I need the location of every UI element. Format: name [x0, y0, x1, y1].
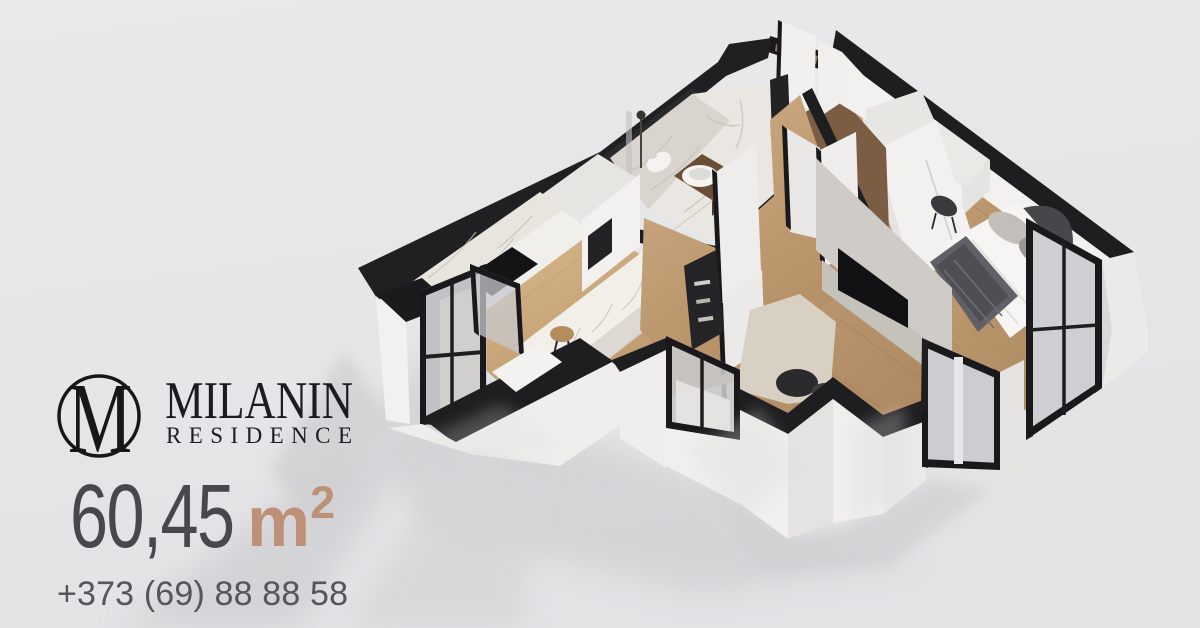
- svg-text:60,45: 60,45: [70, 466, 234, 566]
- svg-text:RESIDENCE: RESIDENCE: [166, 423, 352, 448]
- svg-text:MILANIN: MILANIN: [165, 372, 353, 430]
- svg-text:+373 (69) 88 88 58: +373 (69) 88 88 58: [57, 575, 348, 613]
- svg-text:M: M: [68, 362, 132, 474]
